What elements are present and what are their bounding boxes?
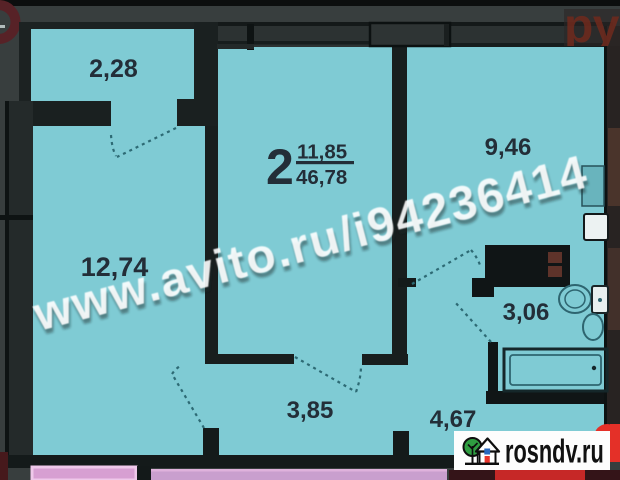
svg-text:2: 2 — [266, 139, 294, 195]
svg-text:rosndv.ru: rosndv.ru — [505, 433, 604, 470]
svg-text:3,85: 3,85 — [287, 397, 334, 424]
svg-text:11,85: 11,85 — [297, 141, 347, 164]
svg-text:9,46: 9,46 — [485, 134, 532, 161]
svg-text:4,67: 4,67 — [430, 406, 477, 433]
svg-text:3,06: 3,06 — [503, 299, 550, 326]
svg-text:2,28: 2,28 — [89, 55, 138, 83]
svg-text:46,78: 46,78 — [296, 166, 347, 189]
